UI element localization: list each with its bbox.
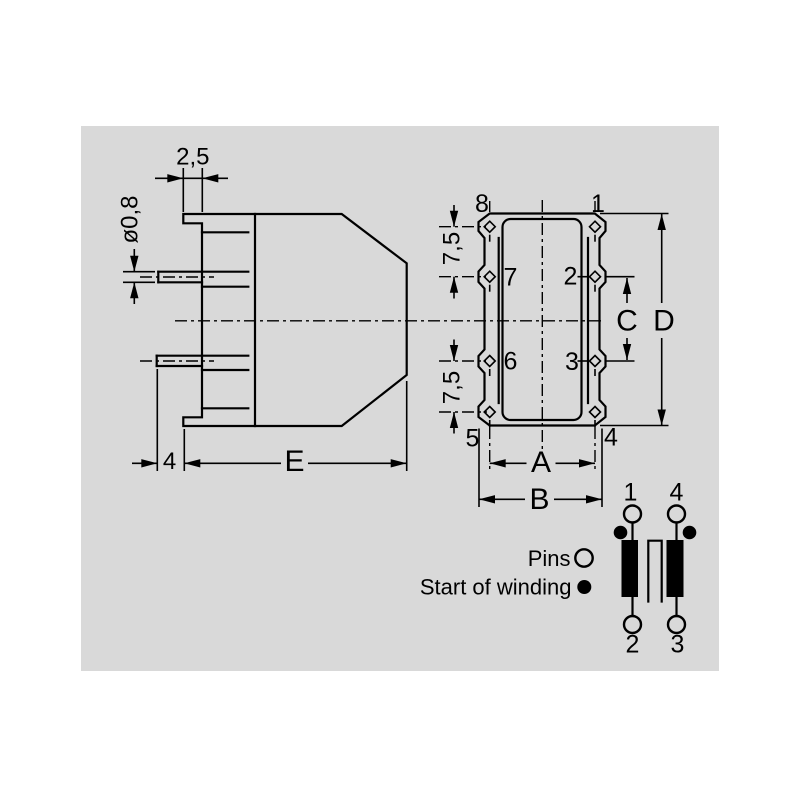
winding-secondary [667, 540, 684, 597]
pin-label-5: 5 [466, 425, 480, 453]
dim-label-pitch-top: 7,5 [439, 232, 466, 265]
dim-label-pitch-bottom: 7,5 [439, 371, 466, 404]
dim-label-body-length: E [284, 445, 304, 478]
schematic-pin-label-3: 3 [671, 631, 685, 659]
dim-label-a: A [531, 446, 551, 479]
dim-label-pin-protrusion: 4 [163, 448, 176, 475]
dimension-drawing: 2,5 ø0,8 4 E [0, 0, 800, 800]
pin-label-2: 2 [564, 263, 578, 291]
dim-label-b: B [529, 483, 549, 516]
start-of-winding-dot-1 [614, 526, 628, 540]
pin-label-4: 4 [604, 424, 618, 452]
start-of-winding-dot-4 [683, 526, 697, 540]
pin-label-8: 8 [475, 190, 489, 218]
pin-label-7: 7 [504, 264, 518, 292]
technical-drawing-page: 2,5 ø0,8 4 E [0, 0, 800, 800]
dim-label-pin-diameter: ø0,8 [117, 195, 144, 243]
schematic-pin-label-2: 2 [626, 631, 640, 659]
dim-label-flange-thickness: 2,5 [176, 144, 209, 171]
schematic-pin-label-4: 4 [670, 479, 684, 507]
winding-primary [622, 540, 639, 597]
dim-label-c: C [616, 305, 638, 338]
filled-dot-icon [577, 580, 591, 594]
legend-pins-label: Pins [528, 546, 571, 571]
pin-label-6: 6 [504, 348, 518, 376]
schematic-pin-label-1: 1 [624, 479, 638, 507]
dim-label-d: D [653, 305, 675, 338]
legend-start-of-winding-label: Start of winding [420, 575, 572, 600]
pin-label-3: 3 [565, 348, 579, 376]
